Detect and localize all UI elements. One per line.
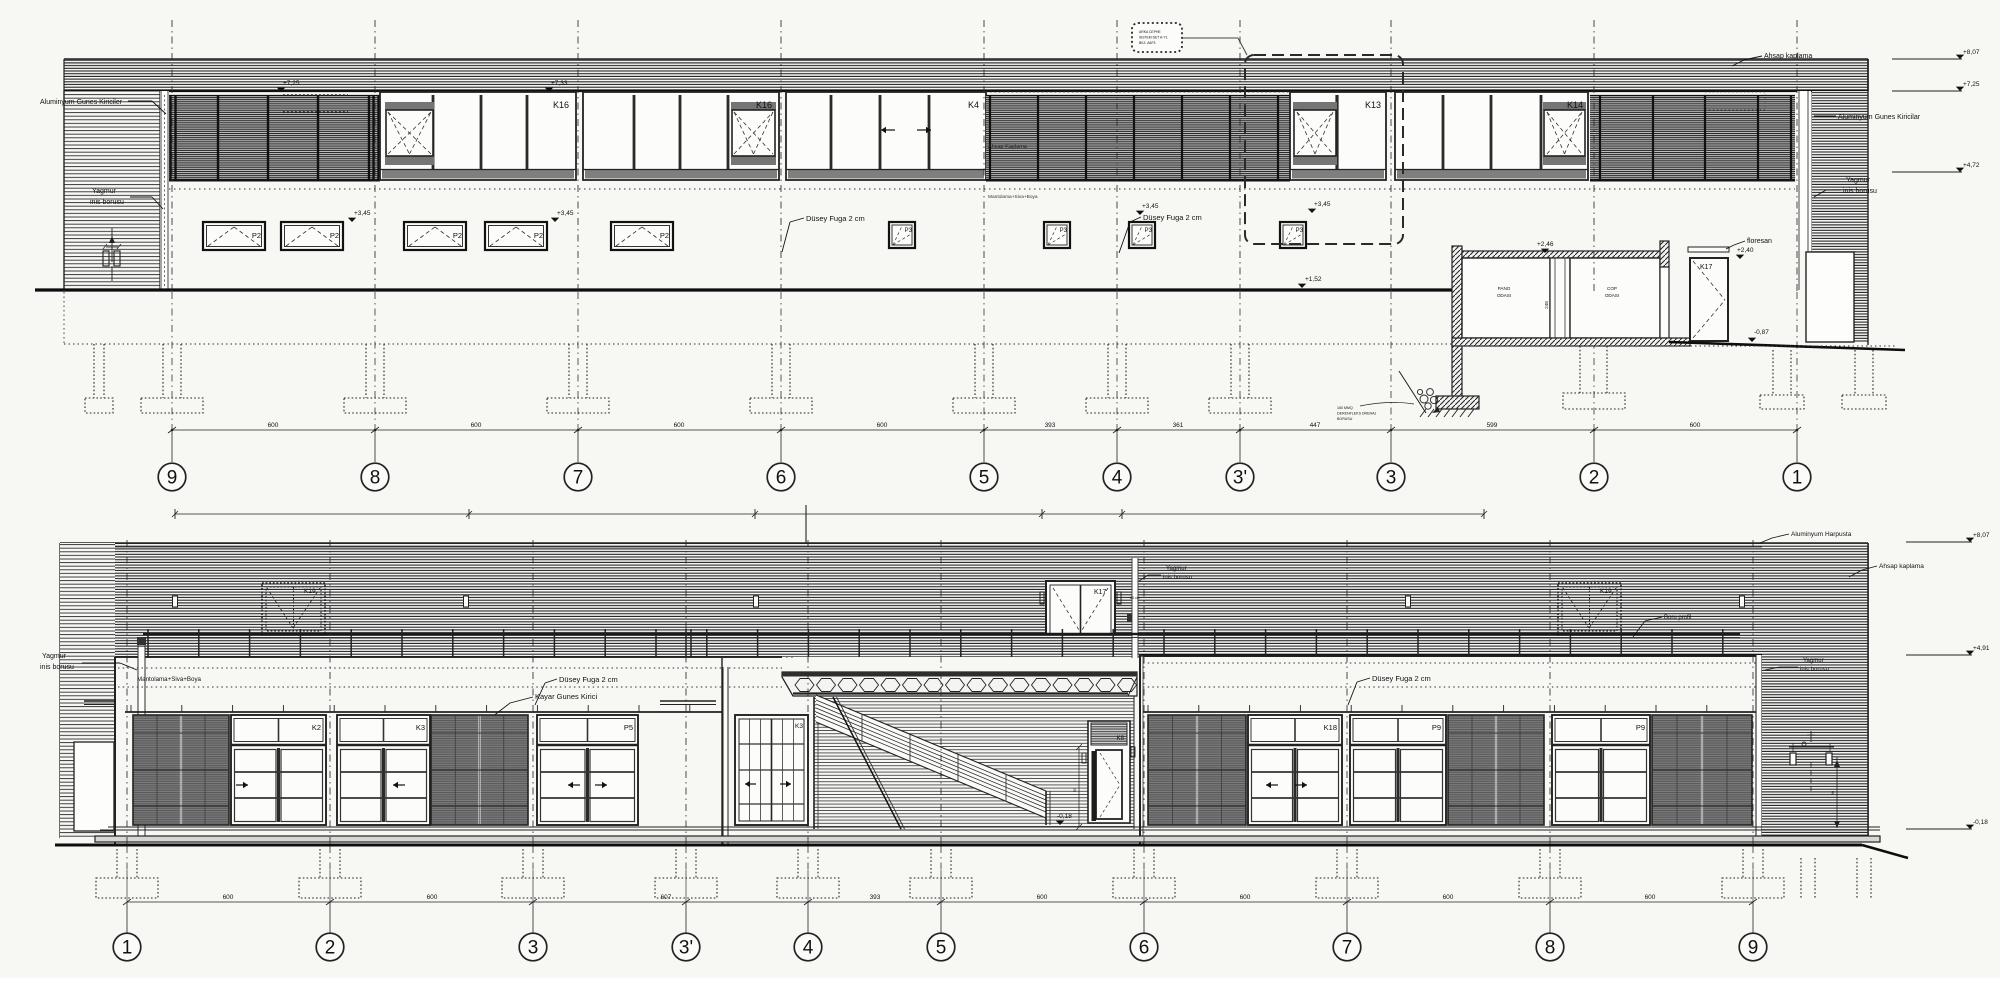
svg-text:Yagmur: Yagmur — [92, 188, 117, 195]
svg-text:Aluminyum Harpusta: Aluminyum Harpusta — [1791, 531, 1852, 538]
svg-text:447: 447 — [1310, 422, 1321, 429]
svg-text:P2: P2 — [252, 231, 261, 240]
svg-text:600: 600 — [1645, 894, 1656, 901]
svg-text:607: 607 — [661, 894, 672, 901]
svg-text:2: 2 — [1589, 468, 1600, 489]
svg-text:5: 5 — [936, 938, 947, 959]
svg-text:600: 600 — [223, 894, 234, 901]
svg-text:K16: K16 — [553, 100, 569, 110]
svg-text:K18: K18 — [1324, 723, 1337, 732]
svg-text:361: 361 — [1173, 422, 1184, 429]
svg-text:600: 600 — [1240, 894, 1251, 901]
svg-text:+3,45: +3,45 — [354, 210, 371, 217]
svg-text:Ahsap kaplama: Ahsap kaplama — [1879, 563, 1924, 570]
svg-text:600: 600 — [1690, 422, 1701, 429]
svg-text:5: 5 — [979, 468, 990, 489]
svg-text:+2,46: +2,46 — [1537, 241, 1554, 248]
svg-text:600: 600 — [471, 422, 482, 429]
svg-text:1: 1 — [1792, 468, 1803, 489]
svg-text:Ahsap Kaplama: Ahsap Kaplama — [988, 144, 1028, 150]
svg-text:Düsey Fuga 2 cm: Düsey Fuga 2 cm — [1372, 674, 1431, 683]
svg-text:9: 9 — [1748, 938, 1759, 959]
svg-text:P5: P5 — [624, 723, 633, 732]
svg-text:600: 600 — [1443, 894, 1454, 901]
svg-text:6: 6 — [776, 468, 787, 489]
svg-text:+7,25: +7,25 — [1963, 81, 1980, 88]
svg-text:+4,91: +4,91 — [1973, 645, 1990, 652]
svg-text:+3,45: +3,45 — [1142, 203, 1159, 210]
svg-text:inis borusu: inis borusu — [1843, 188, 1877, 195]
svg-text:P3: P3 — [905, 228, 913, 234]
svg-text:Düsey Fuga 2 cm: Düsey Fuga 2 cm — [559, 675, 618, 684]
svg-text:K13: K13 — [1365, 100, 1381, 110]
svg-text:PANO: PANO — [1498, 286, 1511, 291]
svg-text:ODASI: ODASI — [1605, 293, 1619, 298]
svg-text:7: 7 — [1342, 938, 1353, 959]
svg-text:COP: COP — [1607, 286, 1617, 291]
svg-text:+7,33: +7,33 — [551, 80, 568, 87]
svg-text:K17: K17 — [1094, 589, 1107, 596]
svg-text:3: 3 — [1386, 468, 1397, 489]
svg-text:P2: P2 — [660, 231, 669, 240]
svg-text:7: 7 — [573, 468, 584, 489]
svg-text:ODASI: ODASI — [1497, 293, 1511, 298]
svg-text:393: 393 — [870, 894, 881, 901]
svg-text:Düsey Fuga 2 cm: Düsey Fuga 2 cm — [1143, 213, 1202, 222]
svg-text:3: 3 — [528, 938, 539, 959]
svg-text:BORUSU: BORUSU — [1337, 417, 1353, 421]
svg-text:600: 600 — [877, 422, 888, 429]
svg-text:inis borusu: inis borusu — [1800, 667, 1829, 673]
svg-text:160 MMQ: 160 MMQ — [1337, 406, 1353, 410]
svg-text:+2,40: +2,40 — [1737, 247, 1754, 254]
svg-text:-0,87: -0,87 — [1754, 329, 1769, 336]
svg-text:-0,18: -0,18 — [1057, 813, 1072, 820]
svg-text:599: 599 — [1487, 422, 1498, 429]
svg-text:P2: P2 — [534, 231, 543, 240]
svg-text:90: 90 — [1831, 791, 1835, 795]
svg-text:K19: K19 — [1600, 588, 1612, 595]
svg-text:+4,72: +4,72 — [1963, 162, 1980, 169]
svg-text:3': 3' — [679, 938, 693, 959]
svg-text:600: 600 — [674, 422, 685, 429]
svg-text:DERENFLEKS DRENAJ: DERENFLEKS DRENAJ — [1337, 412, 1377, 416]
svg-text:1: 1 — [122, 938, 133, 959]
svg-text:Mantolama+Siva+Boya: Mantolama+Siva+Boya — [137, 676, 202, 683]
svg-text:BKZ. A6F3: BKZ. A6F3 — [1139, 41, 1156, 45]
svg-text:Yagmur: Yagmur — [42, 653, 67, 660]
svg-text:P9: P9 — [1432, 723, 1441, 732]
svg-text:P3: P3 — [1145, 228, 1153, 234]
svg-text:Aluminyum Gunes Kiriciler: Aluminyum Gunes Kiriciler — [40, 99, 123, 106]
svg-text:P3: P3 — [1296, 228, 1304, 234]
svg-text:Yagmur: Yagmur — [1166, 566, 1187, 572]
svg-text:P2: P2 — [453, 231, 462, 240]
svg-text:Kayar Gunes Kirici: Kayar Gunes Kirici — [535, 692, 597, 701]
svg-text:2: 2 — [325, 938, 336, 959]
svg-text:+1,52: +1,52 — [1305, 276, 1322, 283]
svg-text:90: 90 — [1073, 788, 1077, 792]
svg-text:3': 3' — [1233, 468, 1247, 489]
svg-text:4: 4 — [803, 938, 814, 959]
svg-text:9: 9 — [167, 468, 178, 489]
svg-text:K4: K4 — [968, 100, 979, 110]
svg-text:Mantolama+Siva+Boya: Mantolama+Siva+Boya — [988, 194, 1038, 200]
svg-text:Düsey Fuga 2 cm: Düsey Fuga 2 cm — [806, 214, 865, 223]
svg-text:K17: K17 — [1700, 264, 1713, 271]
svg-text:inis borusu: inis borusu — [40, 664, 74, 671]
svg-text:600: 600 — [427, 894, 438, 901]
svg-text:K2: K2 — [312, 723, 321, 732]
svg-text:600: 600 — [268, 422, 279, 429]
svg-text:P2: P2 — [330, 231, 339, 240]
svg-text:+8,07: +8,07 — [1963, 49, 1980, 56]
svg-text:K3: K3 — [416, 723, 425, 732]
svg-text:floresan: floresan — [1747, 238, 1772, 245]
svg-text:+3,45: +3,45 — [1314, 201, 1331, 208]
svg-text:inis borusu: inis borusu — [1163, 575, 1192, 581]
svg-text:~60 cm: ~60 cm — [1128, 596, 1140, 600]
svg-text:600: 600 — [1037, 894, 1048, 901]
svg-text:SISTEM DET A-Y1: SISTEM DET A-Y1 — [1139, 36, 1168, 40]
svg-text:Ahsap kaplama: Ahsap kaplama — [1764, 53, 1812, 60]
svg-text:P9: P9 — [1636, 723, 1645, 732]
svg-text:393: 393 — [1045, 422, 1056, 429]
svg-text:P3: P3 — [1060, 228, 1068, 234]
svg-text:8: 8 — [370, 468, 381, 489]
svg-text:Yagmur: Yagmur — [1846, 177, 1871, 184]
svg-text:248: 248 — [1544, 301, 1549, 309]
svg-text:K16: K16 — [756, 100, 772, 110]
svg-text:Yagmur: Yagmur — [1803, 658, 1824, 664]
svg-text:-0,18: -0,18 — [1973, 819, 1988, 826]
svg-text:K8: K8 — [1117, 736, 1125, 742]
svg-text:+8,07: +8,07 — [1973, 532, 1990, 539]
svg-text:Boru profil: Boru profil — [1664, 615, 1691, 621]
svg-text:ARKA CEPHE: ARKA CEPHE — [1139, 30, 1161, 34]
svg-text:K3: K3 — [795, 723, 803, 730]
svg-text:4: 4 — [1112, 468, 1123, 489]
svg-text:+3,45: +3,45 — [557, 210, 574, 217]
svg-text:K19: K19 — [304, 588, 316, 595]
svg-text:inis borusu: inis borusu — [90, 199, 124, 206]
svg-text:K14: K14 — [1567, 100, 1583, 110]
svg-text:+7,25: +7,25 — [283, 80, 300, 87]
svg-text:8: 8 — [1545, 938, 1556, 959]
svg-text:6: 6 — [1139, 938, 1150, 959]
svg-text:Aluminyum Gunes Kiricilar: Aluminyum Gunes Kiricilar — [1838, 114, 1921, 121]
